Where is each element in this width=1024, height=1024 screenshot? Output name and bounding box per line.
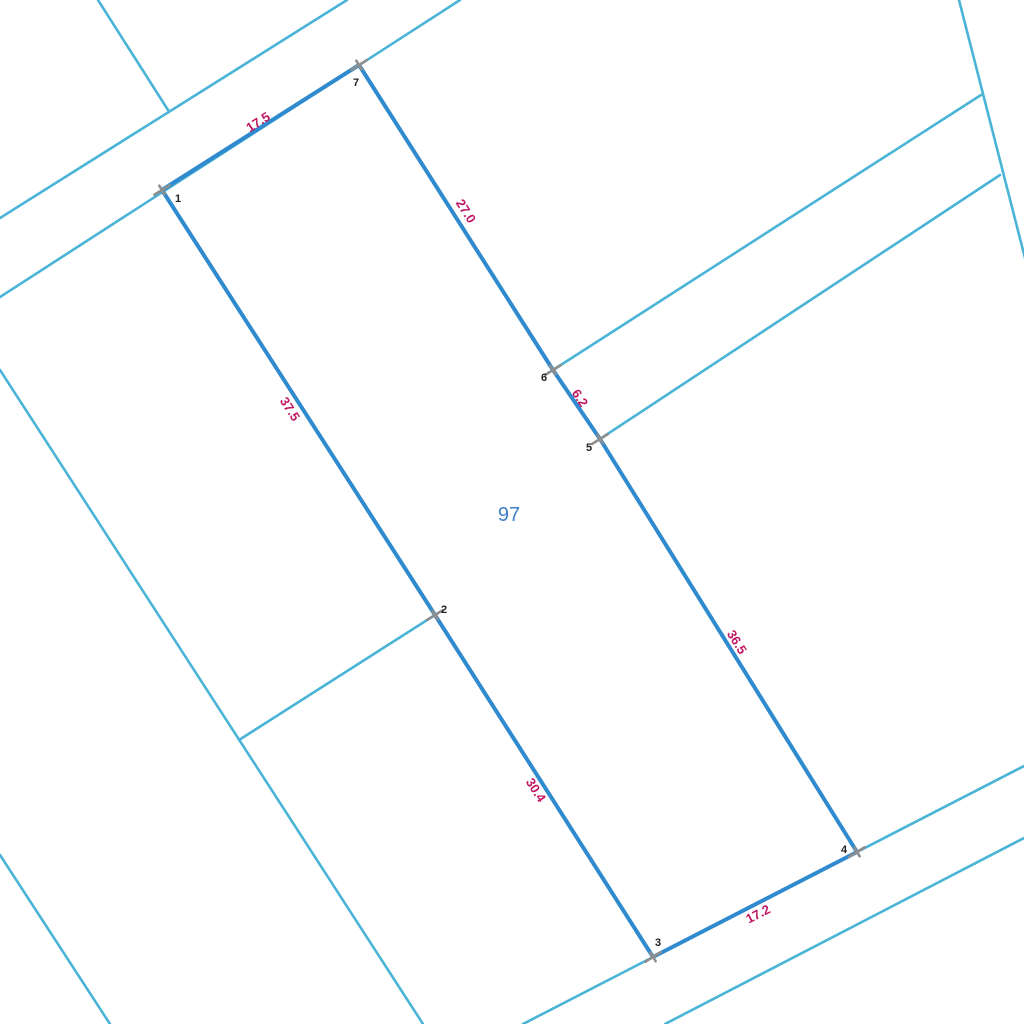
edge-length-label-37.5: 37.5 — [277, 394, 303, 423]
vertex-number-label-1: 1 — [175, 193, 181, 205]
cadastre-line-side-line-top-left — [98, 0, 168, 110]
cadastre-line-branch-to-vertex-2 — [239, 615, 435, 740]
edge-length-label-30.4: 30.4 — [523, 775, 550, 805]
cadastre-line-side-line-left — [0, 370, 423, 1024]
edge-length-label-6.2: 6.2 — [569, 386, 592, 409]
parcel-number-label: 97 — [498, 504, 520, 526]
map-viewport[interactable]: 123456717.527.06.236.517.230.437.597 — [0, 0, 1024, 1024]
vertex-marker-3 — [643, 948, 664, 966]
vertex-number-label-5: 5 — [586, 442, 592, 454]
edge-length-label-17.2: 17.2 — [743, 902, 772, 927]
cadastre-line-side-line-top-right — [959, 0, 1024, 258]
vertex-number-label-7: 7 — [353, 77, 359, 89]
vertex-number-label-6: 6 — [541, 372, 547, 384]
cadastre-line-side-line-bottom-left — [0, 855, 110, 1024]
vertex-number-label-3: 3 — [655, 937, 661, 949]
labels-layer: 123456717.527.06.236.517.230.437.597 — [175, 77, 848, 949]
cadastre-line-branch-to-vertex-5 — [600, 175, 1000, 439]
map-canvas[interactable]: 123456717.527.06.236.517.230.437.597 — [0, 0, 1024, 1024]
vertex-number-label-4: 4 — [841, 844, 848, 856]
vertex-number-label-2: 2 — [441, 604, 447, 616]
vertex-marker-4 — [847, 843, 868, 861]
cadastre-line-road-lower-edge-se — [665, 838, 1024, 1024]
